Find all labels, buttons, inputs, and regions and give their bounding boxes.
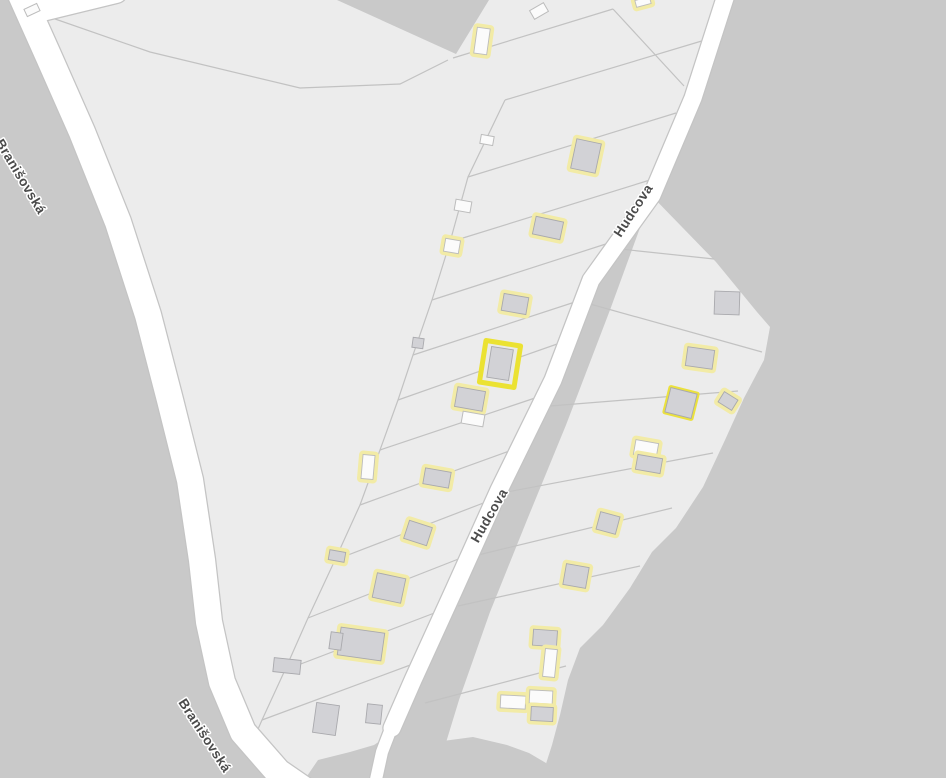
building-plain[interactable]	[714, 291, 740, 315]
building-plain[interactable]	[412, 337, 424, 348]
building-outbuilding[interactable]	[480, 134, 494, 145]
building-highlighted-outbuilding[interactable]	[543, 648, 558, 677]
building-highlighted[interactable]	[685, 347, 714, 370]
building-plain[interactable]	[313, 703, 340, 736]
building-highlighted-outbuilding[interactable]	[443, 238, 460, 253]
building-highlighted[interactable]	[454, 387, 485, 412]
building-highlighted-outbuilding[interactable]	[500, 695, 526, 709]
building-highlighted[interactable]	[328, 550, 345, 563]
building-highlighted[interactable]	[532, 629, 557, 647]
building-highlighted[interactable]	[563, 564, 589, 589]
building-highlighted-outbuilding[interactable]	[529, 690, 553, 704]
building-highlighted-outbuilding[interactable]	[361, 455, 375, 480]
building-plain[interactable]	[273, 658, 301, 675]
building-outbuilding[interactable]	[454, 199, 472, 213]
building-plain[interactable]	[366, 704, 383, 724]
building-highlighted[interactable]	[531, 706, 554, 721]
building-highlighted[interactable]	[337, 627, 384, 661]
building-highlighted[interactable]	[501, 293, 529, 314]
map-viewport[interactable]: BranišovskáBranišovskáHudcovaHudcova	[0, 0, 946, 778]
building-highlighted[interactable]	[372, 573, 406, 603]
building-selected[interactable]	[487, 346, 514, 380]
map-canvas[interactable]: BranišovskáBranišovskáHudcovaHudcova	[0, 0, 946, 778]
building-plain[interactable]	[329, 632, 343, 651]
